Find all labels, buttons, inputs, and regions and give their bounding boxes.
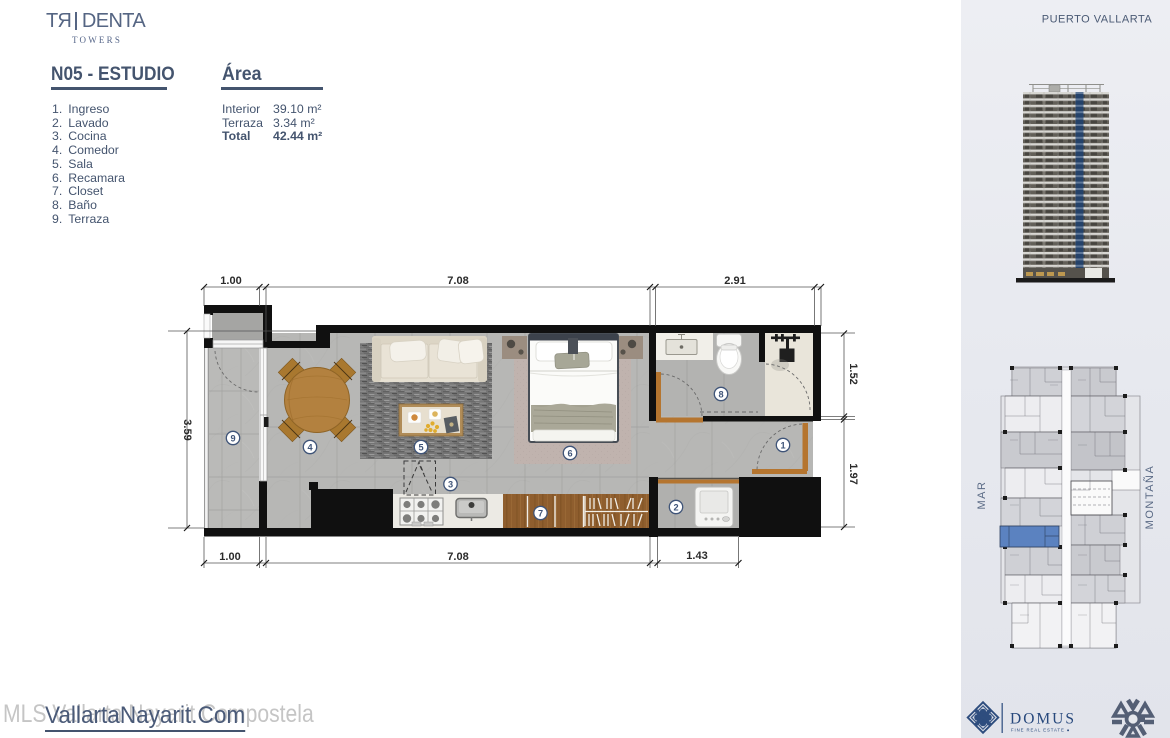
svg-text:7: 7: [538, 508, 543, 518]
svg-text:5: 5: [418, 442, 423, 452]
svg-text:MAR: MAR: [976, 481, 988, 510]
svg-text:1: 1: [780, 440, 785, 450]
svg-text:1.43: 1.43: [686, 550, 707, 562]
svg-text:4: 4: [307, 442, 313, 452]
svg-text:7.08: 7.08: [447, 275, 468, 287]
svg-text:7.08: 7.08: [447, 551, 468, 563]
svg-text:2: 2: [673, 502, 678, 512]
svg-text:MONTAÑA: MONTAÑA: [1143, 465, 1156, 530]
svg-text:FINE REAL ESTATE ●: FINE REAL ESTATE ●: [1011, 728, 1070, 733]
svg-text:1.52: 1.52: [847, 363, 859, 384]
svg-text:3: 3: [448, 479, 453, 489]
svg-text:8: 8: [718, 389, 723, 399]
svg-text:2.91: 2.91: [724, 275, 745, 287]
svg-text:3.59: 3.59: [181, 419, 193, 440]
svg-text:DOMUS: DOMUS: [1010, 711, 1076, 728]
svg-text:1.97: 1.97: [847, 463, 859, 484]
svg-text:6: 6: [567, 448, 572, 458]
svg-text:9: 9: [230, 433, 235, 443]
svg-text:1.00: 1.00: [220, 275, 241, 287]
svg-text:PUERTO VALLARTA: PUERTO VALLARTA: [1042, 14, 1153, 26]
svg-text:1.00: 1.00: [219, 551, 240, 563]
